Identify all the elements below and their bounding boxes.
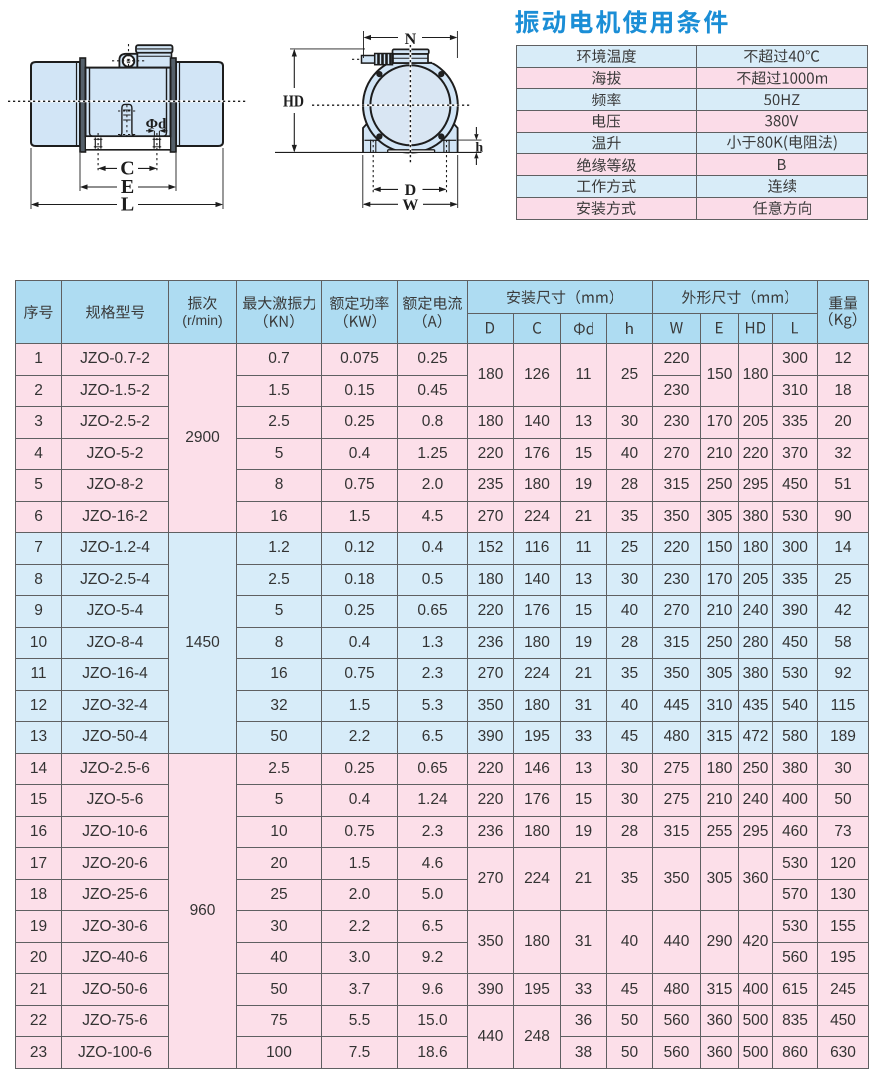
svg-text:L: L [121,194,134,216]
svg-text:h: h [475,140,483,155]
svg-text:N: N [405,31,417,48]
svg-text:HD: HD [283,92,304,111]
svg-text:W: W [402,197,418,214]
